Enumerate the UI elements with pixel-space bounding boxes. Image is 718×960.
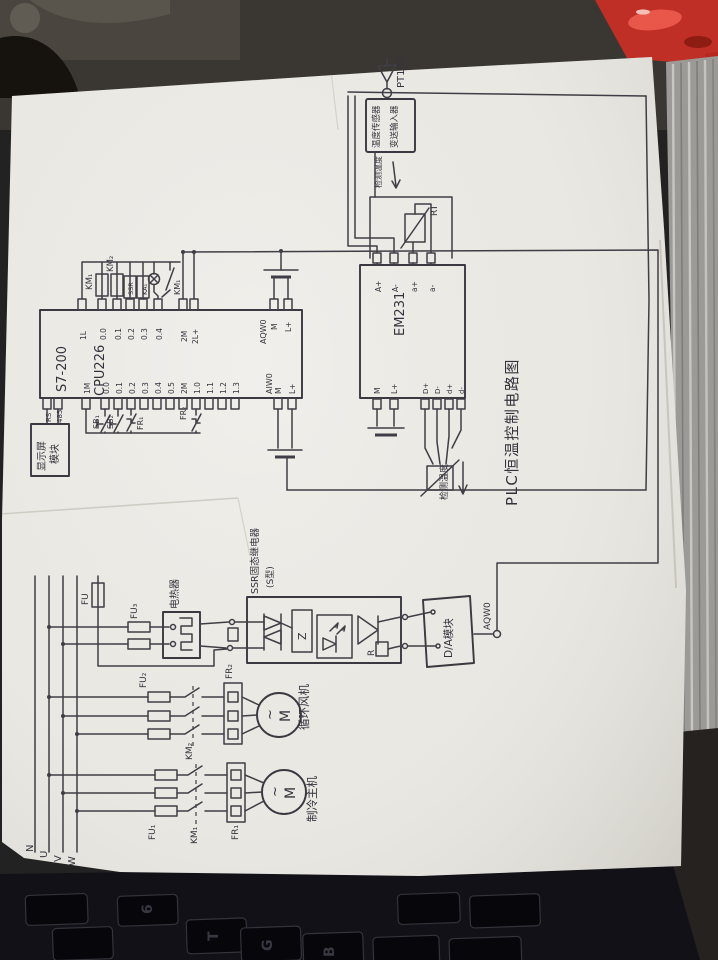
plc-aqw-term: L+ xyxy=(284,322,293,332)
sb2-label: SB₂ xyxy=(106,415,115,429)
diagram-title: PLC恒温控制电路图 xyxy=(503,358,521,506)
phase-n: N xyxy=(25,845,36,852)
km2-coil-label: KM₂ xyxy=(106,256,116,272)
phase-v: V xyxy=(53,855,64,862)
ssr-r-label: R xyxy=(367,650,377,656)
measure-temp-label-2: 检测温度 xyxy=(438,464,450,500)
plc-model-1: S7-200 xyxy=(55,346,70,392)
plc-in-term: 0.2 xyxy=(128,382,137,394)
plc-in-term: 0.4 xyxy=(154,382,163,394)
plc-in-term: 0.3 xyxy=(141,382,150,394)
pt100-label: PT100 xyxy=(396,57,407,88)
ssr-z-label: Z xyxy=(296,632,309,640)
fr1-label: FR₁ xyxy=(231,825,241,840)
plc-out-term: 2L+ xyxy=(191,329,200,344)
fr1-contact-label: FR₁ xyxy=(136,417,145,430)
plc-aqw-label: AQW0 xyxy=(259,319,268,344)
laptop-keyboard: 6 T G B xyxy=(0,862,700,960)
da-aqw0-label: AQW0 xyxy=(483,602,493,630)
fu-label: FU xyxy=(81,593,91,605)
fu1-label: FU₁ xyxy=(148,824,158,840)
em231-term: L+ xyxy=(390,384,399,394)
plc-out-term: 2M xyxy=(180,331,189,342)
em231-term: a+ xyxy=(410,281,419,292)
ssr-input-label: SSR xyxy=(127,282,135,295)
plc-out-term: 0.2 xyxy=(127,328,136,340)
em231-term: D+ xyxy=(422,383,430,394)
plc-out-term: 0.0 xyxy=(99,328,108,340)
display-module-label-1: 显示屏 xyxy=(36,441,48,471)
plc-out-term: 0.4 xyxy=(155,328,164,340)
fan-name-label: 循环风机 xyxy=(297,684,311,730)
ssr-title-type: (S型) xyxy=(265,566,276,588)
km1-label: KM₁ xyxy=(190,826,200,844)
chiller-motor-tilde: ~ xyxy=(268,786,283,797)
plc-in-term: 0.0 xyxy=(102,382,111,394)
em231-term: d+ xyxy=(446,384,454,394)
keyboard-key-t[interactable]: T xyxy=(206,931,222,941)
display-module-label-2: 模块 xyxy=(49,444,61,464)
keyboard-key-6[interactable]: 6 xyxy=(140,904,156,914)
plc-in-term: 0.1 xyxy=(115,382,124,394)
fan-motor-m: M xyxy=(278,710,294,722)
heater-label: 电热器 xyxy=(168,579,181,609)
ka-coil-label: KA₁ xyxy=(141,283,149,295)
em231-term: M xyxy=(373,388,382,394)
comm-term-rs: RS xyxy=(45,412,53,422)
km1-contact-label: KM₁ xyxy=(173,280,182,295)
photo-of-schematic: 6 T G B PT100 温度传感器 变送输入器 检测温度 xyxy=(0,0,718,960)
km1-coil-label: KM₁ xyxy=(85,274,95,290)
em231-term: a- xyxy=(428,284,437,292)
comm-term-485: 485 xyxy=(56,410,64,423)
fu2-label: FU₂ xyxy=(139,672,149,688)
fr2-label: FR₂ xyxy=(225,664,235,679)
chiller-motor-m: M xyxy=(283,787,299,799)
plc-aiw-term: M xyxy=(274,388,283,394)
plc-aqw-term: M xyxy=(270,324,279,330)
transmitter-label-1: 温度传感器 xyxy=(371,105,382,148)
plc-in-term: 0.5 xyxy=(167,382,176,394)
em231-term: d- xyxy=(458,387,466,394)
paper-shading xyxy=(0,0,718,960)
plc-aiw-label: AIW0 xyxy=(265,373,274,394)
plc-out-term: 1L xyxy=(79,330,88,340)
fr2-contact-label: FR₂ xyxy=(179,407,188,420)
plc-out-term: 0.1 xyxy=(114,328,123,340)
plc-aiw-term: L+ xyxy=(288,384,297,394)
em231-term: A- xyxy=(391,284,400,292)
plc-in-term: 2M xyxy=(180,383,189,394)
plc-in-term: 1.1 xyxy=(206,382,215,394)
plc-in-term: 1M xyxy=(83,383,92,394)
measure-temp-label: 检测温度 xyxy=(373,156,383,188)
em231-name: EM231 xyxy=(393,292,408,336)
plc-in-term: 1.0 xyxy=(193,382,202,394)
em231-term: D- xyxy=(434,386,442,394)
plc-in-term: 1.3 xyxy=(232,382,241,394)
ssr-title: SSR固态继电器 xyxy=(249,527,261,594)
chiller-name-label: 制冷主机 xyxy=(305,776,319,822)
fu3-label: FU₃ xyxy=(130,603,140,619)
keyboard-key-b[interactable]: B xyxy=(322,946,338,957)
transmitter-label-2: 变送输入器 xyxy=(389,105,400,148)
plc-out-term: 0.3 xyxy=(140,328,149,340)
rt-label: RT xyxy=(430,204,440,216)
fan-motor-tilde: ~ xyxy=(263,709,278,720)
plc-in-term: 1.2 xyxy=(219,382,228,394)
km2-label: KM₂ xyxy=(185,742,195,760)
phase-w: W xyxy=(67,856,78,866)
keyboard-key-g[interactable]: G xyxy=(260,940,276,952)
em231-term: A+ xyxy=(374,281,383,292)
schematic-photo-svg: 6 T G B PT100 温度传感器 变送输入器 检测温度 xyxy=(0,0,718,960)
sb1-label: SB₁ xyxy=(92,415,101,429)
phase-u: U xyxy=(39,851,50,858)
da-module-label: D/A模块 xyxy=(443,618,455,658)
